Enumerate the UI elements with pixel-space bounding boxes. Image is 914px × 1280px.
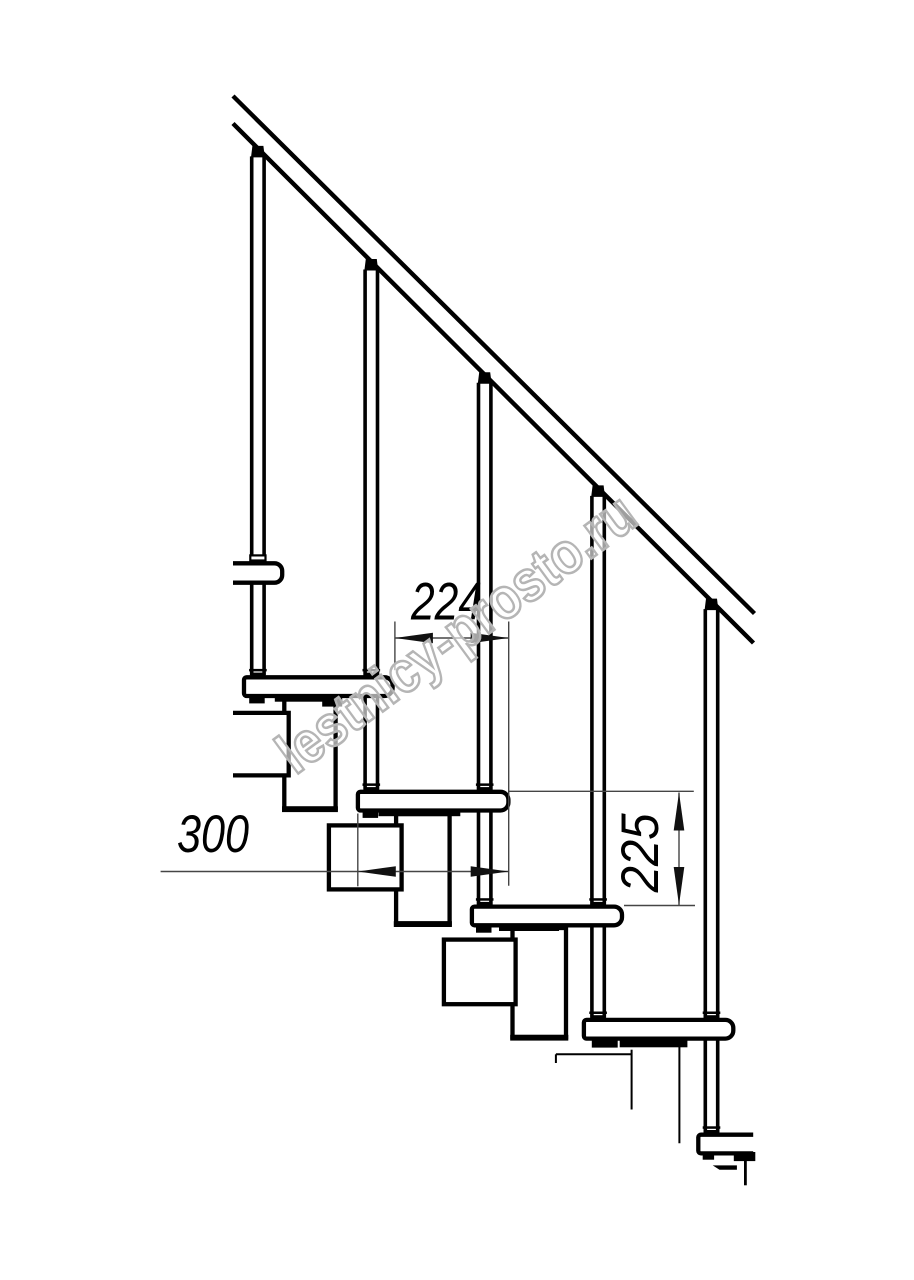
svg-text:300: 300: [177, 805, 249, 864]
svg-text:225: 225: [611, 813, 670, 893]
